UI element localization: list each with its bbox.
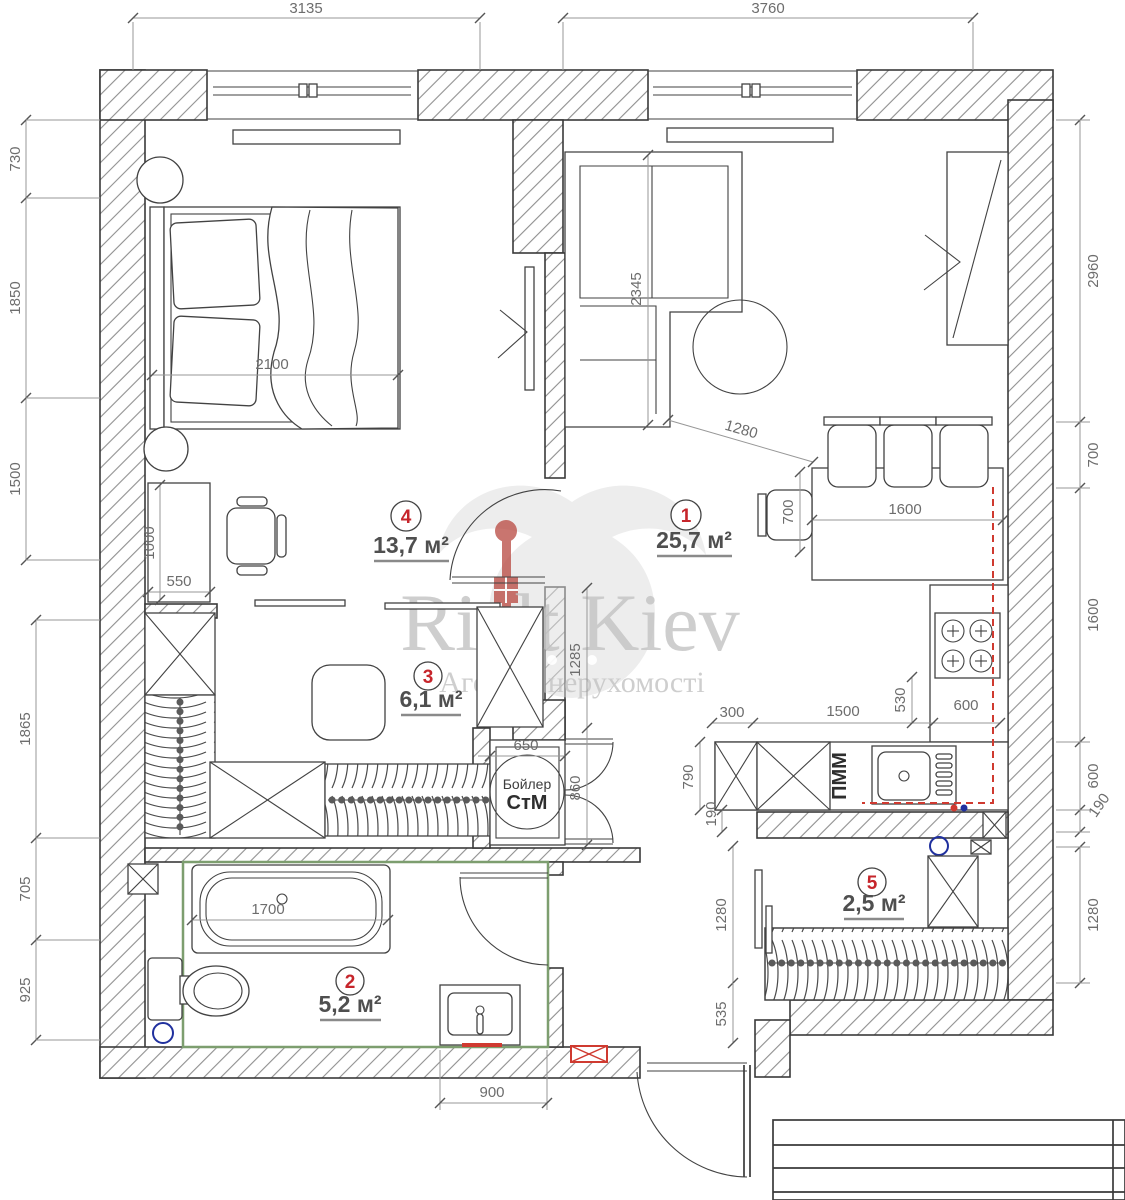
- dim-label: 790: [680, 764, 697, 789]
- svg-text:4: 4: [401, 507, 412, 528]
- dim-label: 1000: [141, 526, 158, 559]
- nightstand: [144, 427, 188, 471]
- room-area-1: 25,7 м²: [656, 527, 732, 553]
- window-bedroom: [207, 71, 418, 119]
- dim-label: 2345: [628, 272, 645, 305]
- sliding-panel: [766, 906, 772, 953]
- dim-label: 3760: [751, 0, 784, 17]
- boiler-label: Бойлер: [503, 776, 552, 792]
- dim-label: 3135: [289, 0, 322, 17]
- brand-text-right: Kiev: [580, 577, 739, 668]
- dim-label: 550: [166, 573, 191, 590]
- wall-marker: [462, 1043, 502, 1047]
- svg-text:1: 1: [681, 506, 692, 527]
- floor-plan-page: Rielt Kiev Агенція нерухомості: [0, 0, 1125, 1200]
- hall-furniture: [145, 607, 543, 838]
- svg-text:2: 2: [345, 972, 356, 993]
- dim-label: 1280: [1085, 898, 1102, 931]
- dim-label: 1280: [723, 417, 760, 443]
- dim-label: 2100: [255, 356, 288, 373]
- dimension-right: 2960 700 1600 600 190 1280: [1056, 115, 1113, 988]
- floor-plan-svg: Rielt Kiev Агенція нерухомості: [0, 0, 1125, 1200]
- dim-label: 1850: [7, 281, 24, 314]
- pillow: [170, 219, 260, 309]
- closet-shelves: [145, 613, 215, 695]
- vent-icon: [971, 840, 991, 854]
- bathroom: [128, 862, 607, 1062]
- vent-shaft: [477, 607, 543, 727]
- room-area-5: 2,5 м²: [842, 890, 905, 916]
- dim-label: 300: [719, 704, 744, 721]
- room-area-2: 5,2 м²: [318, 991, 381, 1017]
- blanket: [268, 207, 398, 429]
- door-swing: [565, 795, 613, 843]
- dim-label: 925: [17, 977, 34, 1002]
- tv-cabinet: [924, 152, 1008, 345]
- dim-label: 1600: [888, 501, 921, 518]
- dining-chair: [824, 417, 880, 487]
- dim-label: 1500: [7, 462, 24, 495]
- closet-shelves: [928, 856, 978, 927]
- dim-label: 1700: [251, 901, 284, 918]
- bathtub: [192, 865, 390, 953]
- wardrobe-rail: [325, 764, 490, 836]
- dim-label: 860: [567, 775, 584, 800]
- closet-shelves: [210, 762, 325, 838]
- dining-chair: [880, 417, 936, 487]
- toilet: [148, 958, 249, 1020]
- dim-label: 1600: [1085, 598, 1102, 631]
- dim-label: 2960: [1085, 254, 1102, 287]
- dimension-top: 3135 3760: [128, 0, 978, 70]
- vanity-sink: [440, 985, 520, 1045]
- rug: [693, 300, 787, 394]
- vent-icon: [983, 812, 1006, 838]
- water-point-cold: [961, 805, 968, 812]
- pelmet: [667, 128, 833, 142]
- dim-label: 1865: [17, 712, 34, 745]
- toilet-water-point: [153, 1023, 173, 1043]
- dim-label: 1285: [567, 643, 584, 676]
- sofa: [565, 152, 742, 427]
- svg-text:3: 3: [423, 667, 434, 688]
- desk-chair: [227, 497, 286, 575]
- dim-label: 1500: [826, 703, 859, 720]
- base-cabinet: [715, 742, 830, 810]
- water-point-hot: [951, 805, 958, 812]
- dim-label: 705: [17, 876, 34, 901]
- bed: [150, 207, 400, 429]
- room-badge-1: 1: [671, 500, 701, 530]
- wardrobe-rail: [765, 928, 1008, 1000]
- sliding-panel: [755, 870, 762, 948]
- sink: [872, 746, 956, 804]
- room-area-4: 13,7 м²: [373, 532, 449, 558]
- dishwasher-label: ПММ: [829, 752, 851, 800]
- washing-machine-label: СтМ: [507, 792, 548, 814]
- entrance-door: [637, 1063, 750, 1177]
- room-area-3: 6,1 м²: [399, 686, 462, 712]
- wardrobe-rail: [145, 695, 215, 838]
- mirror-arrow-icon: [498, 310, 527, 358]
- dim-label: 535: [713, 1001, 730, 1026]
- bathroom-door: [460, 873, 548, 965]
- dimension-left: 730 1850 1500 1865 705 925: [7, 115, 100, 1045]
- vent-icon: [128, 864, 158, 894]
- dim-label: 650: [513, 737, 538, 754]
- sliding-panel: [255, 600, 345, 606]
- stove: [935, 613, 1000, 678]
- dim-label: 700: [1085, 442, 1102, 467]
- nightstand: [137, 157, 183, 203]
- tv-panel: [525, 267, 534, 390]
- washer-water-point: [930, 837, 948, 855]
- bedroom-furniture: [137, 130, 534, 609]
- pillow: [170, 316, 260, 406]
- dim-label: 730: [7, 146, 24, 171]
- vent-icon-red: [571, 1046, 607, 1062]
- dining-set: [758, 417, 1003, 580]
- pelmet: [233, 130, 400, 144]
- stairs: [773, 1120, 1125, 1200]
- dim-label: 600: [1085, 763, 1102, 788]
- pouf: [312, 665, 385, 740]
- window-living: [648, 71, 857, 119]
- dim-label: 600: [953, 697, 978, 714]
- dim-label: 1280: [713, 898, 730, 931]
- dining-chair: [936, 417, 992, 487]
- dim-label: 190: [703, 801, 720, 826]
- dim-label: 190: [1085, 790, 1113, 820]
- dim-label: 700: [780, 499, 797, 524]
- dim-label: 530: [892, 687, 909, 712]
- room-badge-4: 4: [391, 501, 421, 531]
- dim-label: 900: [479, 1084, 504, 1101]
- boiler-niche: Бойлер СтМ: [490, 739, 613, 845]
